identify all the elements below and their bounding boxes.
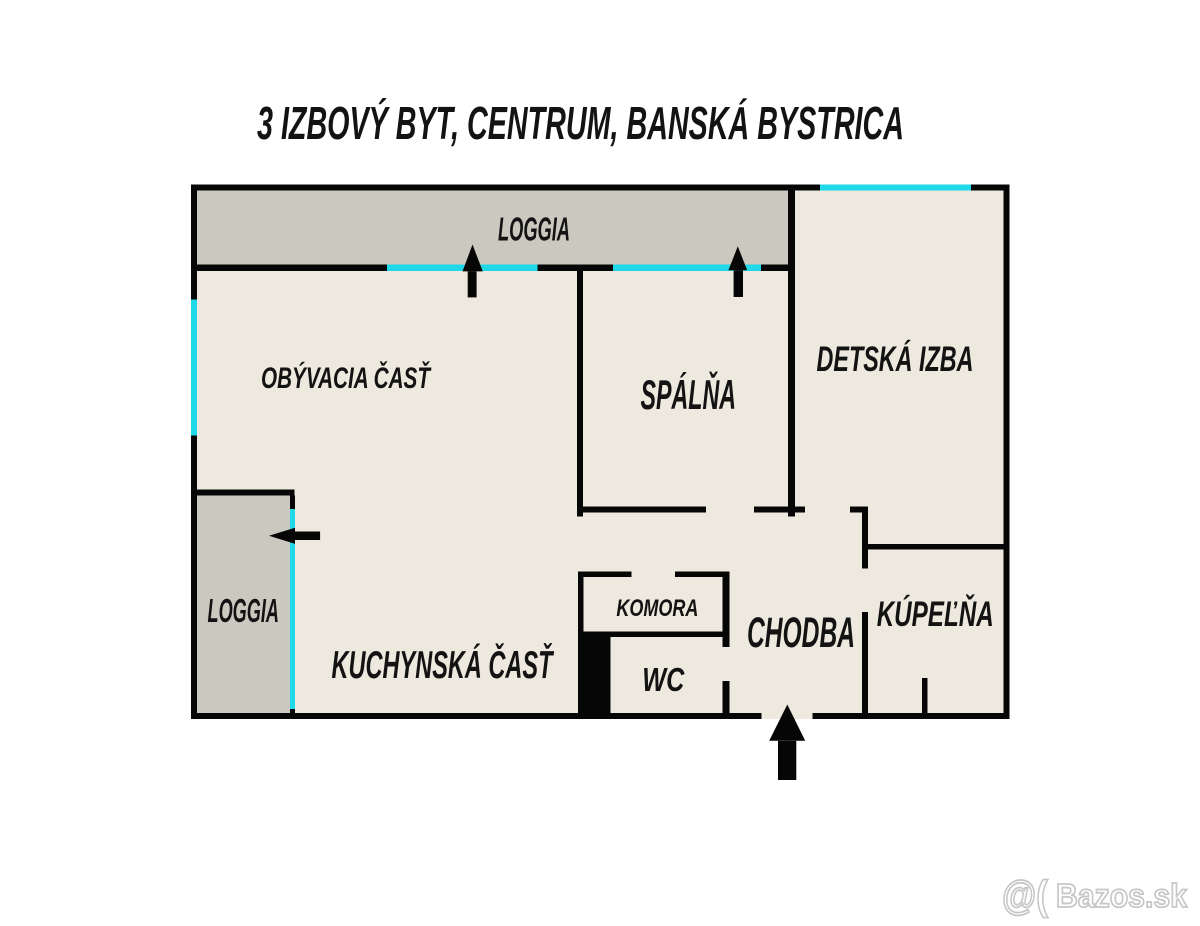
svg-text:Bazos.sk: Bazos.sk [1056,877,1188,914]
svg-text:LOGGIA: LOGGIA [208,592,280,629]
svg-text:CHODBA: CHODBA [747,609,855,657]
svg-text:DETSKÁ IZBA: DETSKÁ IZBA [817,340,974,379]
svg-text:OBÝVACIA ČASŤ: OBÝVACIA ČASŤ [261,361,432,395]
svg-text:WC: WC [642,661,685,698]
svg-text:KUCHYNSKÁ ČASŤ: KUCHYNSKÁ ČASŤ [332,642,555,687]
svg-text:LOGGIA: LOGGIA [498,211,570,248]
svg-text:KÚPEĽŇA: KÚPEĽŇA [877,594,994,634]
svg-text:SPÁLŇA: SPÁLŇA [641,370,737,418]
svg-text:KOMORA: KOMORA [616,595,698,622]
svg-text:@(: @( [1002,872,1048,918]
svg-text:3 IZBOVÝ BYT, CENTRUM, BANSKÁ: 3 IZBOVÝ BYT, CENTRUM, BANSKÁ BYSTRICA [257,97,904,149]
